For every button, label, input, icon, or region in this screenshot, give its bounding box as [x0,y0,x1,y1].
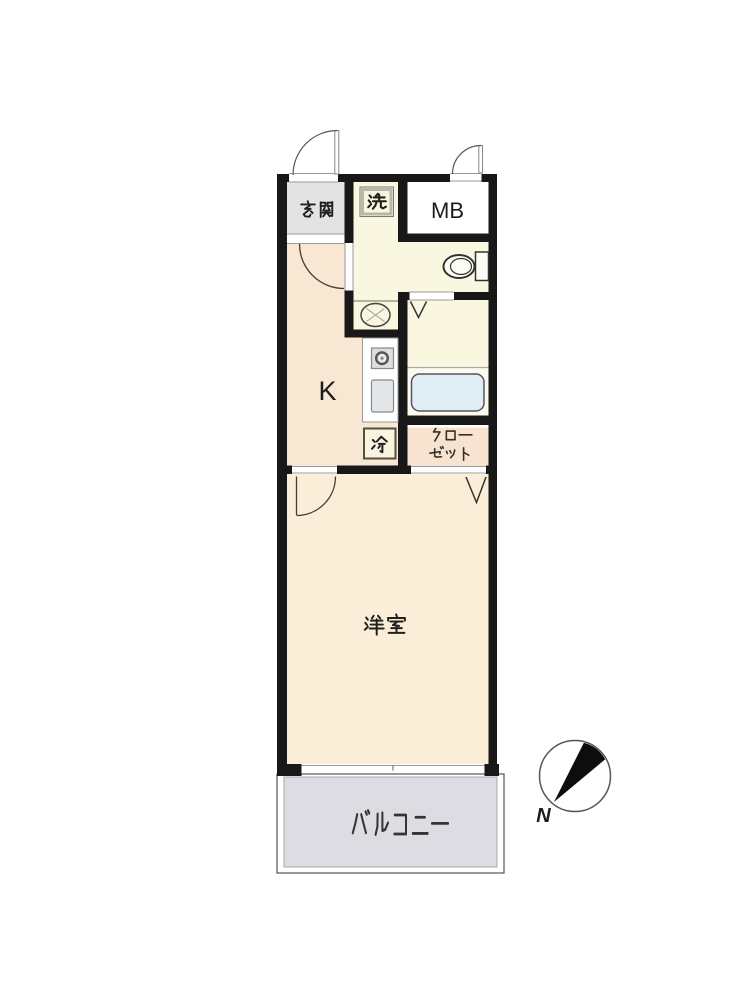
svg-text:N: N [536,805,551,827]
svg-text:MB: MB [431,198,464,223]
svg-text:K: K [318,376,336,406]
